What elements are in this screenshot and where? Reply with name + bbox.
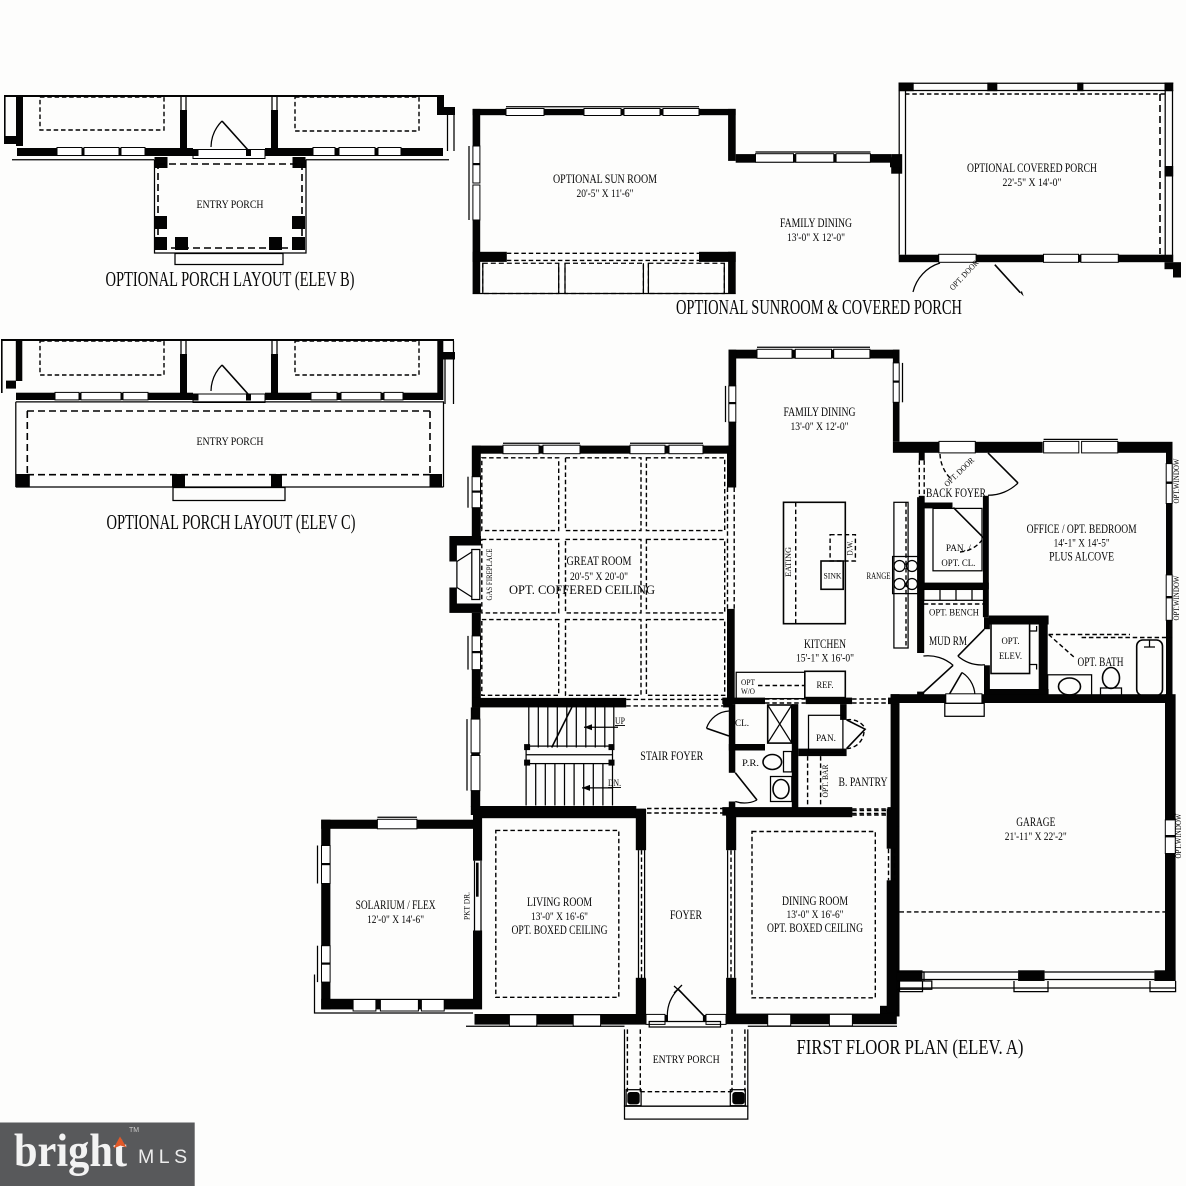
svg-text:KITCHEN: KITCHEN [804,637,846,651]
svg-text:OPT.: OPT. [1002,637,1020,647]
svg-text:OPTIONAL COVERED PORCH: OPTIONAL COVERED PORCH [967,161,1097,175]
svg-text:MUD RM: MUD RM [929,634,967,648]
svg-text:GARAGE: GARAGE [1016,815,1055,829]
svg-text:SINK: SINK [824,572,842,581]
svg-text:OPT. BENCH: OPT. BENCH [929,609,979,619]
svg-text:D.W.: D.W. [846,541,855,556]
svg-text:OPTIONAL SUN ROOM: OPTIONAL SUN ROOM [553,172,657,186]
svg-text:OPT: OPT [741,678,755,687]
svg-text:CL.: CL. [735,719,749,729]
svg-text:P.R.: P.R. [742,759,759,769]
svg-text:UP: UP [615,717,625,727]
svg-text:FAMILY DINING: FAMILY DINING [784,405,856,419]
svg-text:SOLARIUM / FLEX: SOLARIUM / FLEX [356,898,436,912]
svg-text:GAS FIREPLACE: GAS FIREPLACE [485,549,494,601]
svg-text:GREAT ROOM: GREAT ROOM [567,554,632,568]
svg-text:REF.: REF. [817,681,834,691]
svg-text:B. PANTRY: B. PANTRY [839,775,888,789]
svg-text:FAMILY DINING: FAMILY DINING [780,216,852,230]
svg-text:14'-1" X 14'-5": 14'-1" X 14'-5" [1054,538,1110,550]
svg-text:LIVING ROOM: LIVING ROOM [527,895,592,909]
svg-text:PAN. /: PAN. / [946,544,971,554]
svg-text:13'-0" X 16'-6": 13'-0" X 16'-6" [787,909,844,921]
svg-text:ENTRY PORCH: ENTRY PORCH [197,199,264,211]
svg-text:OPTIONAL PORCH LAYOUT (ELEV C): OPTIONAL PORCH LAYOUT (ELEV C) [107,510,356,534]
svg-text:OPTIONAL PORCH LAYOUT (ELEV B): OPTIONAL PORCH LAYOUT (ELEV B) [106,267,355,291]
svg-text:15'-1" X 16'-0": 15'-1" X 16'-0" [796,653,854,665]
svg-text:FOYER: FOYER [670,908,703,922]
svg-text:OPT. BAR: OPT. BAR [821,764,830,797]
svg-text:BACK FOYER: BACK FOYER [926,486,987,500]
svg-text:OPT. COFFERED CEILING: OPT. COFFERED CEILING [509,583,655,597]
svg-text:12'-0" X 14'-6": 12'-0" X 14'-6" [367,914,424,926]
svg-text:OPT. BATH: OPT. BATH [1078,655,1124,669]
svg-text:OPT. BOXED CEILING: OPT. BOXED CEILING [767,921,863,935]
svg-text:20'-5" X 11'-6": 20'-5" X 11'-6" [577,188,634,200]
svg-text:ELEV.: ELEV. [999,652,1022,662]
svg-text:DINING ROOM: DINING ROOM [782,894,848,908]
svg-text:PLUS ALCOVE: PLUS ALCOVE [1049,550,1114,564]
svg-text:OPTIONAL SUNROOM & COVERED POR: OPTIONAL SUNROOM & COVERED PORCH [676,295,962,319]
svg-text:bright: bright [14,1125,127,1177]
svg-text:20'-5" X 20'-0": 20'-5" X 20'-0" [570,571,628,583]
svg-text:13'-0" X 12'-0": 13'-0" X 12'-0" [787,232,845,244]
svg-text:OPT.WINDOW: OPT.WINDOW [1172,575,1181,620]
svg-text:DN.: DN. [608,779,621,789]
svg-text:FIRST FLOOR PLAN (ELEV. A): FIRST FLOOR PLAN (ELEV. A) [797,1035,1024,1059]
svg-text:22'-5" X 14'-0": 22'-5" X 14'-0" [1003,177,1062,189]
svg-text:STAIR FOYER: STAIR FOYER [640,749,704,763]
svg-text:OPT. CL.: OPT. CL. [941,559,975,569]
svg-text:PKT DR.: PKT DR. [463,892,472,920]
svg-text:OPT.WINDOW: OPT.WINDOW [1172,458,1181,503]
svg-text:ENTRY PORCH: ENTRY PORCH [197,436,264,448]
svg-text:RANGE: RANGE [867,572,891,582]
svg-text:MLS: MLS [138,1146,192,1168]
svg-text:PAN.: PAN. [816,734,836,744]
svg-text:TM: TM [129,1127,139,1134]
svg-text:OFFICE / OPT. BEDROOM: OFFICE / OPT. BEDROOM [1027,522,1137,536]
svg-text:13'-0" X 16'-6": 13'-0" X 16'-6" [531,911,588,923]
svg-text:21'-11" X 22'-2": 21'-11" X 22'-2" [1005,831,1067,843]
svg-text:13'-0" X 12'-0": 13'-0" X 12'-0" [791,421,849,433]
svg-text:W/O: W/O [741,687,755,696]
svg-text:OPT. BOXED CEILING: OPT. BOXED CEILING [512,923,608,937]
svg-text:ENTRY PORCH: ENTRY PORCH [653,1054,720,1066]
svg-text:EATING: EATING [784,547,793,577]
